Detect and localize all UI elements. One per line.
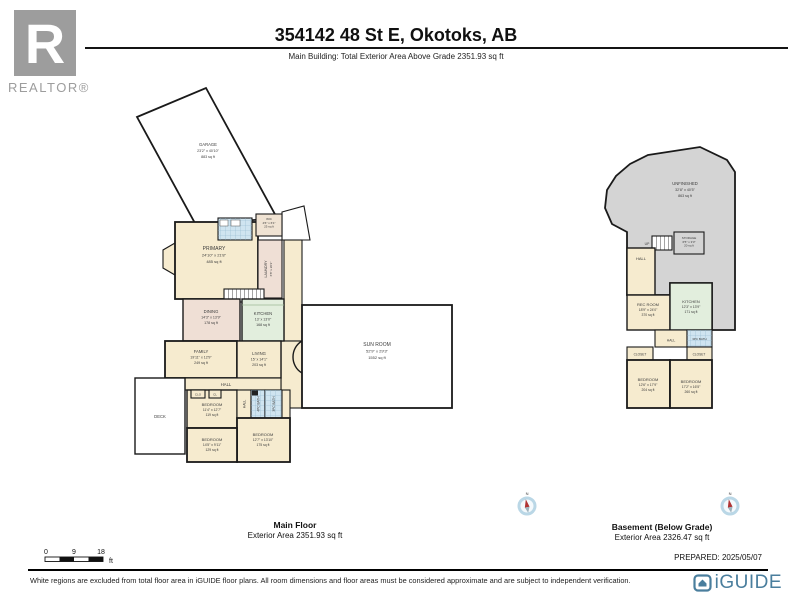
room-area: 249 sq ft — [194, 361, 208, 365]
room-dims: 12'6" x 17'9" — [639, 383, 658, 387]
room-living: LIVING 15' x 14'1" 203 sq ft — [237, 341, 281, 378]
room-name: 3PC BATH — [692, 337, 706, 341]
floor-plan-canvas: GARAGE 23'2" x 40'10" 883 sq ft PRIMARY … — [0, 0, 792, 612]
room-dims: 14'3" x 13'9" — [201, 316, 221, 320]
room-name: CLOSET — [634, 353, 647, 357]
room-area: 171 sq ft — [684, 310, 697, 314]
room-area: 204 sq ft — [641, 388, 654, 392]
room-name: 3PC BATH — [272, 396, 276, 412]
room-bedroom-right: BEDROOM 12'7" x 13'10" 175 sq ft — [237, 418, 290, 462]
scale-bar: 0 9 18 ft — [44, 549, 113, 565]
room-name: PRIMARY — [203, 246, 226, 252]
room-dims: 23'2" x 40'10" — [197, 149, 219, 153]
north-label: N — [729, 491, 732, 496]
room-area: 485 sq ft — [206, 259, 222, 264]
room-closet-left: CLOSET — [627, 347, 653, 360]
room-dims: 13' x 13'0" — [255, 318, 272, 322]
room-hall-vertical: HALL — [237, 390, 251, 418]
footer-disclaimer: White regions are excluded from total fl… — [30, 576, 631, 585]
room-area: 129 sq ft — [205, 448, 218, 452]
room-area: 168 sq ft — [256, 323, 270, 327]
room-kitchen-main: KITCHEN 13' x 13'0" 168 sq ft — [242, 299, 284, 341]
closet-label: CLO — [195, 393, 202, 397]
room-name: 4PC BATH — [257, 396, 261, 412]
room-bath-4pc: 4PC BATH — [251, 390, 265, 418]
room-name: SUN ROOM — [363, 342, 391, 348]
room-area: 25 sq ft — [264, 225, 274, 229]
room-name: GARAGE — [199, 142, 217, 147]
room-area: 119 sq ft — [206, 413, 219, 417]
floor-title: Main Floor — [195, 520, 395, 530]
room-bedroom-left: BEDROOM 14'5" x 9'11" 129 sq ft — [187, 428, 237, 462]
room-hall-basement: HALL — [627, 248, 655, 295]
room-area: 1552 sq ft — [368, 355, 386, 360]
room-name: KITCHEN — [254, 311, 272, 316]
foyer — [284, 240, 302, 341]
iguide-wordmark: iGUIDE — [715, 572, 782, 594]
room-name: DECK — [154, 414, 166, 419]
sink-fixture — [220, 220, 228, 226]
linen-closet — [282, 390, 290, 418]
scale-unit: ft — [109, 558, 113, 565]
iguide-logo-icon — [693, 574, 712, 592]
room-dims: 12'3" x 13'9" — [682, 305, 701, 309]
room-name: LAUNDRY — [264, 260, 268, 278]
room-hall2-basement: HALL — [655, 330, 687, 347]
main-floor-caption: Main Floor Exterior Area 2351.93 sq ft — [195, 520, 395, 540]
room-name: LIVING — [252, 351, 266, 356]
room-storage: STORAGE 6'5" x 3'3" 20 sq ft — [674, 232, 704, 254]
scale-tick-0: 0 — [44, 549, 48, 556]
iguide-logo: iGUIDE — [693, 572, 782, 594]
basement-plan: UNFINISHED 32'8" x 40'5" 863 sq ft UP ST… — [605, 147, 735, 408]
floor-area: Exterior Area 2351.93 sq ft — [195, 531, 395, 540]
room-dims: 12'7" x 13'10" — [253, 438, 274, 442]
room-name: BEDROOM — [638, 377, 659, 382]
footer-divider — [28, 569, 768, 571]
room-name: FAMILY — [194, 349, 209, 354]
front-porch — [282, 206, 310, 240]
room-dims: 14'5" x 9'11" — [203, 443, 222, 447]
room-name: HALL — [636, 256, 647, 261]
room-wic: WIC 4'6" x 6'1" 25 sq ft — [256, 214, 282, 236]
room-ensuite — [218, 218, 252, 240]
basement-caption: Basement (Below Grade) Exterior Area 232… — [562, 522, 762, 542]
room-area: 178 sq ft — [204, 321, 218, 325]
room-dims: 11'4" x 12'7" — [203, 408, 222, 412]
room-dims: 17'2" x 16'5" — [682, 385, 701, 389]
floor-plan-page: R REALTOR® 354142 48 St E, Okotoks, AB M… — [0, 0, 792, 612]
up-label: UP — [645, 242, 650, 246]
room-name: CLOSET — [693, 353, 706, 357]
fixture — [252, 391, 258, 396]
room-area: 203 sq ft — [252, 363, 266, 367]
compass-basement: N — [722, 491, 738, 514]
room-name: HALL — [243, 400, 247, 409]
room-name: REC ROOM — [637, 302, 659, 307]
room-name: BEDROOM — [202, 402, 223, 407]
room-bedroom-left-basement: BEDROOM 12'6" x 17'9" 204 sq ft — [627, 360, 670, 408]
room-area: 883 sq ft — [201, 155, 215, 159]
room-dims: 15' x 14'1" — [251, 358, 268, 362]
room-bedroom-center: CLO CL BEDROOM 11'4" x 12'7" 119 sq ft — [187, 390, 237, 428]
room-bedroom-right-basement: BEDROOM 17'2" x 16'5" 260 sq ft — [670, 360, 712, 408]
room-name: BEDROOM — [253, 432, 274, 437]
closet-label: CL — [213, 393, 217, 397]
main-floor-plan: GARAGE 23'2" x 40'10" 883 sq ft PRIMARY … — [135, 88, 452, 462]
room-family: FAMILY 19'11" x 12'9" 249 sq ft — [165, 341, 237, 378]
room-name: HALL — [667, 339, 676, 343]
room-name: KITCHEN — [682, 299, 700, 304]
room-kitchen-basement: KITCHEN 12'3" x 13'9" 171 sq ft — [670, 283, 712, 330]
floor-title: Basement (Below Grade) — [562, 522, 762, 532]
room-dining: DINING 14'3" x 13'9" 178 sq ft — [183, 299, 240, 341]
room-bath-basement: 3PC BATH — [687, 330, 712, 347]
room-area: 260 sq ft — [684, 390, 697, 394]
room-dims: 6'8" x 20'2" — [269, 262, 273, 277]
prepared-date: PREPARED: 2025/05/07 — [640, 553, 762, 562]
room-area: 20 sq ft — [684, 244, 694, 248]
room-area: 863 sq ft — [678, 194, 692, 198]
compass-main-floor: N — [519, 491, 535, 514]
room-name: BEDROOM — [681, 379, 702, 384]
room-dims: 52'9" x 29'3" — [366, 349, 389, 354]
scale-tick-9: 9 — [72, 549, 76, 556]
room-name: DINING — [204, 309, 219, 314]
room-bath-3pc: 3PC BATH — [265, 390, 282, 418]
room-name: BEDROOM — [202, 437, 223, 442]
north-label: N — [526, 491, 529, 496]
deck: DECK — [135, 378, 185, 454]
tub-fixture — [231, 220, 240, 226]
room-area: 175 sq ft — [256, 443, 269, 447]
scale-tick-18: 18 — [97, 549, 105, 556]
room-dims: 32'8" x 40'5" — [675, 188, 695, 192]
floor-area: Exterior Area 2326.47 sq ft — [562, 533, 762, 542]
room-area: 370 sq ft — [641, 313, 654, 317]
room-name: HALL — [221, 382, 232, 387]
room-garage: GARAGE 23'2" x 40'10" 883 sq ft — [137, 88, 277, 225]
bay-window — [163, 243, 175, 275]
room-sunroom: SUN ROOM 52'9" x 29'3" 1552 sq ft — [293, 305, 452, 408]
room-hall-main: HALL — [185, 378, 281, 390]
room-recroom: REC ROOM 18'9" x 24'0" 370 sq ft — [627, 295, 670, 330]
room-dims: 18'9" x 24'0" — [639, 308, 658, 312]
room-dims: 19'11" x 12'9" — [190, 356, 212, 360]
room-dims: 24'10" x 21'8" — [202, 253, 227, 258]
room-closet-right: CLOSET — [687, 347, 712, 360]
room-name: UNFINISHED — [672, 181, 698, 186]
